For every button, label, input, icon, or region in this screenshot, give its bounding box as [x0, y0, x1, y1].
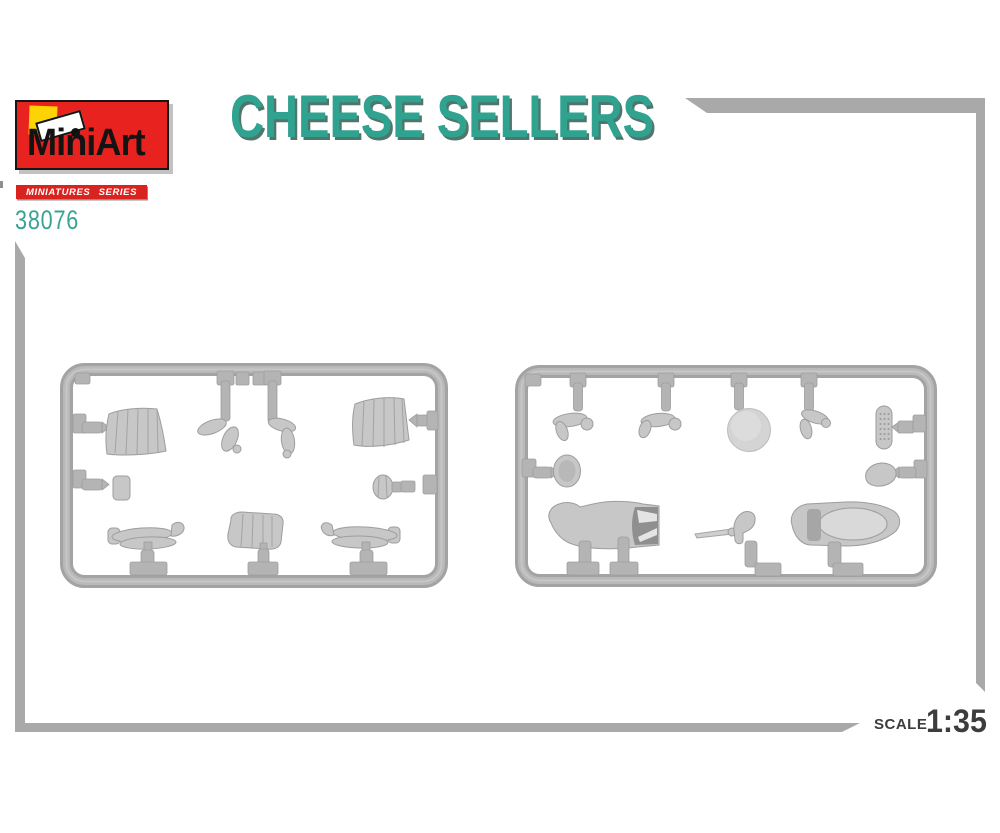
brand-name: MiniArt: [27, 124, 145, 162]
part-arm-3: [552, 373, 593, 442]
part-coat: [549, 501, 659, 575]
series-badge: MINIATURES SERIES: [16, 185, 147, 199]
miniart-logo: MiniArt: [15, 100, 169, 170]
page-title: CHEESE SELLERS: [230, 87, 654, 147]
part-arm-1: [196, 371, 242, 454]
part-jug: [373, 475, 437, 499]
part-arm-4: [637, 373, 681, 439]
scale-value: 1:35: [926, 705, 987, 737]
part-knife: [695, 511, 781, 576]
product-code: 38076: [15, 207, 79, 234]
part-grater: [876, 406, 926, 449]
part-cheese-piece: [866, 460, 927, 486]
part-dress-torso: [791, 502, 899, 576]
part-legs-left: [108, 522, 184, 575]
series-badge-label: MINIATURES SERIES: [26, 187, 137, 198]
part-skirt-left: [73, 408, 166, 455]
page-edge-mark: [0, 181, 3, 188]
part-round-plate: [522, 455, 581, 487]
part-legs-right: [321, 523, 400, 575]
page: MiniArt MINIATURES SERIES 38076 CHEESE S…: [0, 0, 1000, 833]
sprue-a-photo: [60, 363, 448, 588]
part-cheese-wheel: [728, 373, 771, 452]
part-bodice: [228, 512, 283, 575]
part-small-block: [73, 470, 130, 500]
part-arm-5: [798, 373, 830, 440]
part-arm-2: [264, 371, 297, 458]
sprue-b-photo: [515, 365, 937, 587]
part-skirt-right: [353, 397, 438, 447]
scale-label: SCALE: [874, 717, 927, 732]
